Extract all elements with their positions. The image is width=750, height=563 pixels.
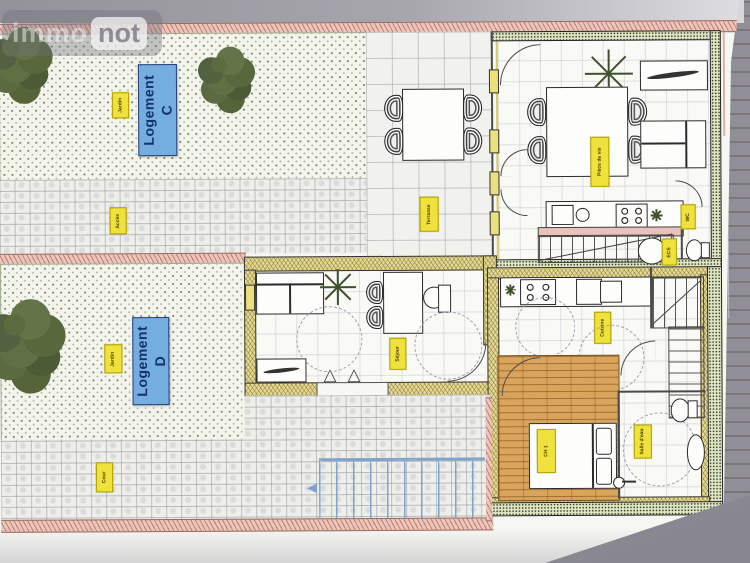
room-label-text: Terrasse xyxy=(426,204,431,225)
unit-label-text: Logement D xyxy=(133,326,168,397)
immonot-watermark: immo not xyxy=(2,10,162,56)
console-table xyxy=(256,358,306,382)
terrace-chair xyxy=(384,128,403,155)
washbasin xyxy=(687,434,705,470)
room-label-text: Accès xyxy=(116,213,121,228)
unit-label-logement-c: Logement C xyxy=(138,64,177,156)
room-label-wc-c: WC xyxy=(681,204,696,229)
bed-fold-line xyxy=(592,424,594,488)
room-label-text: CH 1 xyxy=(544,445,549,456)
turning-radius-circle xyxy=(414,311,482,379)
console-decor xyxy=(263,367,299,375)
room-label-living-c: Pièce de vie xyxy=(590,137,609,187)
sofa-cushion-line xyxy=(641,142,685,144)
wheelchair-seat xyxy=(438,285,451,313)
shower-head xyxy=(613,477,625,489)
unit-label-logement-d: Logement D xyxy=(132,317,169,405)
turning-radius-circle xyxy=(515,297,575,357)
sideboard xyxy=(640,60,708,90)
boundary-line-side xyxy=(486,397,493,521)
logement-c-line1: Logement xyxy=(140,75,158,146)
unit-c-wall-right xyxy=(710,30,722,268)
room-label-path: Accès xyxy=(110,207,127,234)
pillow xyxy=(596,428,612,455)
shower-arm xyxy=(622,481,636,483)
kitchen-sink-basin xyxy=(576,208,590,222)
unit-label-text: Logement C xyxy=(140,75,175,146)
sink-basin-left xyxy=(576,279,602,305)
terrace-chair xyxy=(384,95,403,122)
window xyxy=(489,69,499,93)
window xyxy=(489,171,499,195)
kitchen-sink xyxy=(552,205,574,225)
room-label-courtyard: Cour xyxy=(96,462,113,492)
room-label-text: Jardin xyxy=(118,98,123,113)
room-label-text: Cour xyxy=(102,472,107,484)
watermark-text-left: immo xyxy=(12,18,88,49)
sofa-cushion-line xyxy=(289,283,291,313)
tree xyxy=(3,314,25,336)
room-label-garden-d: Jardin xyxy=(104,344,122,373)
margin-boundary-mark xyxy=(723,32,726,136)
table-d xyxy=(383,272,423,334)
door-opening-symbol: △ xyxy=(347,366,360,383)
watermark-text-right: not xyxy=(91,17,147,50)
dining-table-c xyxy=(546,87,628,177)
room-label-bath-d: Salle d'eau xyxy=(634,425,652,459)
plant-icon xyxy=(320,268,356,304)
sofa-back-line xyxy=(685,121,687,167)
paved-path xyxy=(0,178,367,255)
logement-d-line2: D xyxy=(151,326,169,397)
dining-chair xyxy=(527,136,546,164)
pillow xyxy=(596,458,612,485)
room-label-heater: ECS xyxy=(662,238,677,265)
site-plan: Logement C Jardin Accès Logement D Jardi… xyxy=(0,0,741,563)
dining-chair xyxy=(366,281,383,304)
unit-d-wall-top xyxy=(244,255,494,271)
sink-basin-right xyxy=(600,281,622,303)
toilet-tank-c xyxy=(701,242,710,258)
room-label-garden-c: Jardin xyxy=(112,92,129,118)
wc-partition xyxy=(681,227,683,259)
room-label-text: Jardin xyxy=(111,351,116,366)
sofa-d xyxy=(256,272,324,314)
room-label-text: WC xyxy=(686,213,691,221)
tree xyxy=(211,57,226,72)
room-label-text: ECS xyxy=(667,247,672,257)
stove-c xyxy=(616,204,648,228)
room-label-text: Salle d'eau xyxy=(640,429,645,455)
extractor-icon xyxy=(505,283,516,294)
dining-chair xyxy=(527,98,546,126)
room-label-living-d: Séjour xyxy=(389,338,406,370)
terrace-table xyxy=(402,89,464,161)
unit-d-wall-bottom-outer xyxy=(488,501,723,516)
margin-line xyxy=(728,234,729,318)
unit-d-wall-right-outer xyxy=(707,266,723,512)
room-label-terrace: Terrasse xyxy=(420,197,439,232)
garden-logement-d xyxy=(0,263,247,442)
room-label-text: Pièce de vie xyxy=(597,147,602,176)
floorplan-photo: Logement C Jardin Accès Logement D Jardi… xyxy=(0,0,750,563)
exterior-ramp xyxy=(319,457,485,520)
window xyxy=(490,211,500,235)
stair-winder-line xyxy=(652,279,702,324)
room-label-bedroom-d: CH 1 xyxy=(537,429,556,473)
paper-bottom-shadow xyxy=(0,528,724,563)
window xyxy=(245,285,255,311)
logement-d-line1: Logement xyxy=(133,326,151,397)
toilet-tank-d xyxy=(688,400,698,418)
window xyxy=(489,129,499,153)
staircase-d-upper xyxy=(652,276,704,328)
dining-chair xyxy=(366,306,383,329)
sofa-c xyxy=(640,120,706,168)
unit-c-wall-top xyxy=(491,30,721,41)
logement-c-line2: C xyxy=(157,75,175,146)
sideboard-decor xyxy=(647,69,699,81)
ramp-direction-arrow xyxy=(307,483,317,493)
extractor-icon xyxy=(651,208,663,220)
room-label-text: Séjour xyxy=(395,346,400,362)
